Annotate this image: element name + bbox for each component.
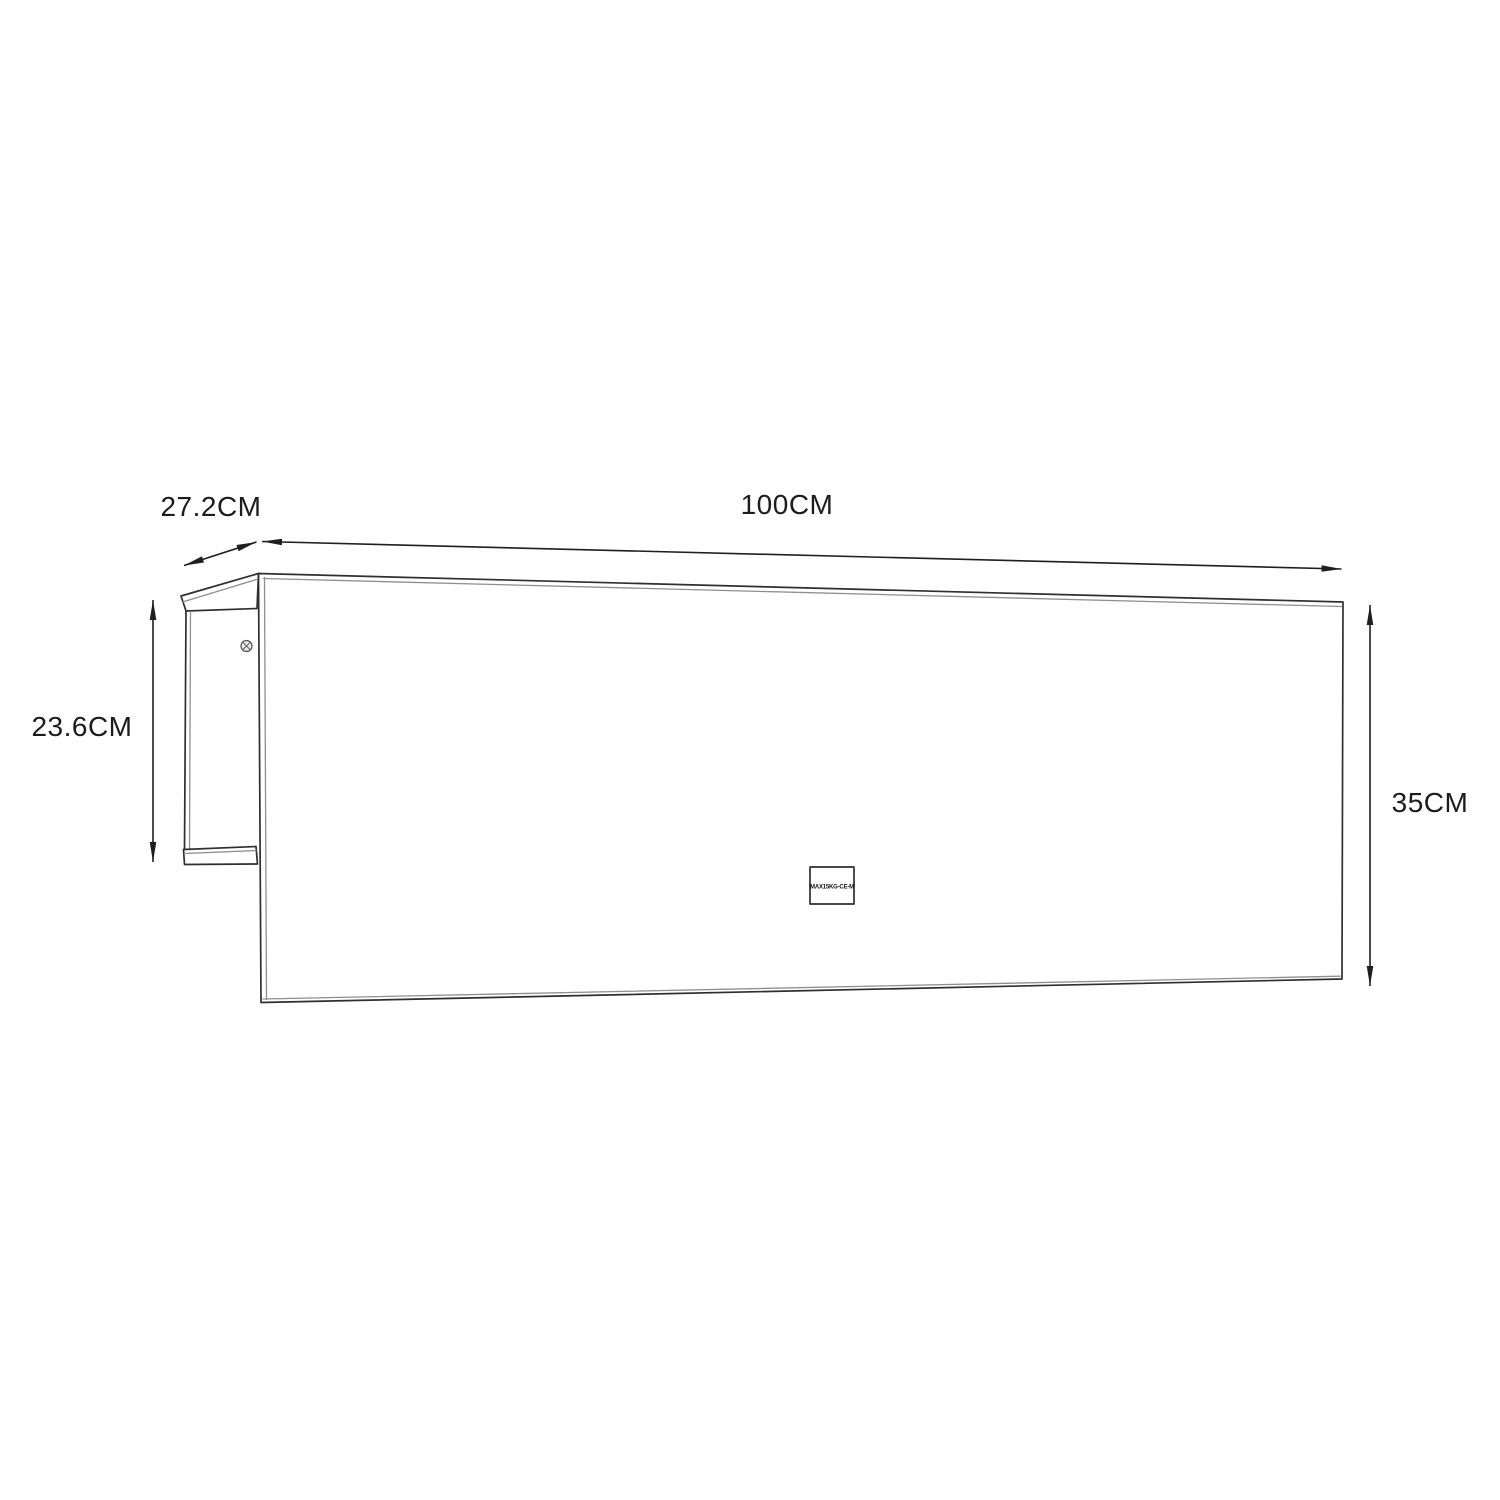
front-height-dimension-label: 35CM: [1392, 787, 1469, 818]
side-bottom-panel: [184, 847, 258, 865]
side-back-edge: [185, 611, 187, 849]
diagram-canvas: MAX15KG-CE-M 27.2CM 100CM 23.6CM 35CM: [0, 0, 1500, 1500]
side-height-dimension-label: 23.6CM: [31, 711, 132, 742]
screw-icon: [241, 641, 252, 652]
depth-dimension-label: 27.2CM: [160, 491, 261, 522]
dimension-arrow-depth: [184, 542, 257, 566]
load-label-text: MAX15KG-CE-M: [810, 885, 854, 891]
cabinet-drawing: MAX15KG-CE-M: [181, 574, 1343, 1003]
dimension-arrow-width: [262, 542, 1342, 570]
side-back-edge-inner-line: [190, 612, 191, 850]
width-dimension-label: 100CM: [741, 489, 834, 520]
side-top-panel: [181, 574, 259, 612]
cabinet-dimension-diagram: MAX15KG-CE-M 27.2CM 100CM 23.6CM 35CM: [0, 0, 1500, 1500]
cabinet-front-panel: [259, 574, 1344, 1003]
